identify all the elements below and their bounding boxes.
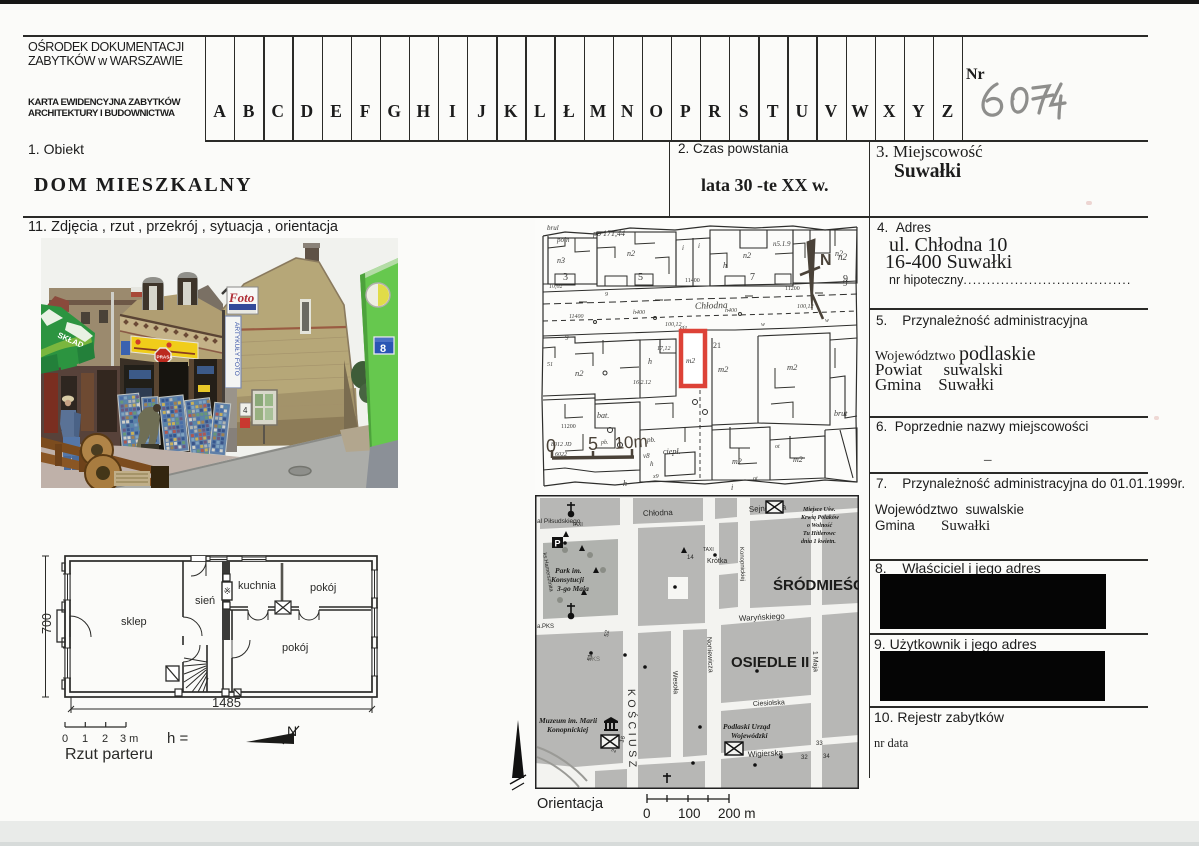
svg-text:ot: ot: [775, 444, 780, 450]
svg-text:1: 1: [82, 733, 88, 745]
svg-text:pokój: pokój: [310, 582, 336, 594]
svg-text:32: 32: [801, 755, 808, 761]
svg-text:n5.1.9: n5.1.9: [773, 240, 791, 248]
svg-text:100,12: 100,12: [665, 322, 682, 328]
svg-text:9: 9: [843, 278, 848, 288]
svg-text:21: 21: [713, 341, 721, 350]
svg-text:ŚRÓDMIEŚC: ŚRÓDMIEŚC: [773, 576, 859, 594]
svg-text:11400: 11400: [569, 313, 584, 320]
svg-text:bat.: bat.: [597, 411, 609, 420]
svg-text:9: 9: [565, 334, 569, 342]
svg-text:a.PKS: a.PKS: [537, 624, 554, 630]
svg-text:v8: v8: [643, 452, 650, 460]
svg-text:N: N: [287, 723, 297, 739]
svg-text:8: 8: [380, 343, 386, 355]
svg-text:Chłodna: Chłodna: [695, 301, 728, 312]
svg-text:0: 0: [62, 733, 68, 745]
svg-text:1 Maja: 1 Maja: [811, 651, 819, 672]
svg-text:TAXI: TAXI: [703, 547, 714, 553]
svg-text:3 m: 3 m: [120, 733, 138, 745]
svg-text:Chłodna: Chłodna: [643, 508, 674, 518]
svg-text:14: 14: [687, 555, 694, 561]
svg-text:sklep: sklep: [121, 616, 147, 628]
svg-text:x9: x9: [652, 474, 659, 480]
svg-text:4: 4: [243, 406, 248, 415]
svg-text:n2: n2: [627, 249, 635, 258]
svg-text:i: i: [682, 244, 684, 252]
svg-text:h: h: [723, 261, 727, 270]
svg-text:5: 5: [638, 272, 643, 283]
svg-text:h =: h =: [167, 730, 189, 747]
svg-text:sień: sień: [195, 595, 215, 607]
svg-text:brul: brul: [547, 224, 559, 232]
svg-text:n3: n3: [557, 256, 565, 265]
svg-text:Muzeum im. Marii: Muzeum im. Marii: [538, 716, 598, 725]
svg-text:700: 700: [40, 613, 54, 634]
svg-text:w: w: [825, 318, 829, 324]
svg-text:100,12: 100,12: [797, 304, 814, 310]
svg-text:N: N: [820, 252, 832, 269]
svg-text:KOŚCIUSZ: KOŚCIUSZ: [625, 689, 639, 771]
svg-text:pb.: pb.: [600, 440, 609, 446]
svg-text:h400: h400: [633, 309, 645, 316]
svg-text:Konsytucji: Konsytucji: [550, 575, 585, 584]
svg-text:TAXI: TAXI: [572, 522, 583, 528]
svg-text:ARTYKUŁY FOTO: ARTYKUŁY FOTO: [233, 322, 240, 376]
svg-text:i: i: [731, 483, 733, 492]
svg-text:Krwią Polaków: Krwią Polaków: [800, 515, 840, 521]
svg-text:OSIEDLE II: OSIEDLE II: [731, 654, 809, 671]
svg-text:h400: h400: [725, 307, 737, 314]
svg-text:PRASA: PRASA: [157, 355, 174, 360]
svg-text:m2: m2: [787, 362, 798, 372]
svg-text:kuchnia: kuchnia: [238, 580, 277, 592]
svg-text:Konopnickiej: Konopnickiej: [738, 547, 745, 581]
svg-text:Tu Hitlerowc: Tu Hitlerowc: [803, 531, 836, 537]
svg-text:Konopnickiej: Konopnickiej: [546, 725, 589, 734]
svg-text:Park im.: Park im.: [555, 566, 582, 575]
svg-text:200 m: 200 m: [718, 806, 756, 821]
svg-text:poln: poln: [556, 236, 570, 244]
svg-text:Rzut parteru: Rzut parteru: [65, 746, 153, 763]
svg-text:m2: m2: [793, 455, 803, 464]
svg-text:h: h: [623, 479, 627, 488]
svg-text:i: i: [698, 242, 700, 250]
svg-text:34: 34: [823, 754, 830, 760]
svg-text:m2: m2: [718, 364, 729, 374]
svg-text:※: ※: [224, 586, 232, 596]
svg-text:Krótka: Krótka: [707, 558, 727, 565]
svg-text:m2: m2: [732, 457, 742, 466]
svg-text:ot: ot: [753, 476, 758, 482]
svg-text:n2: n2: [575, 368, 584, 378]
svg-text:11200: 11200: [561, 424, 576, 430]
svg-text:po 171,44: po 171,44: [592, 229, 625, 238]
svg-text:Wesoła: Wesoła: [671, 671, 679, 695]
svg-text:P: P: [555, 539, 561, 549]
svg-text:h: h: [650, 460, 654, 468]
svg-text:11400: 11400: [685, 278, 700, 284]
svg-text:Wojewódzki: Wojewódzki: [731, 731, 768, 740]
svg-text:ciepł.: ciepł.: [663, 447, 681, 456]
svg-text:Foto: Foto: [228, 290, 255, 305]
svg-text:9: 9: [605, 292, 608, 298]
svg-text:100: 100: [678, 806, 701, 821]
svg-text:0: 0: [643, 806, 651, 821]
svg-text:Wigierska: Wigierska: [748, 748, 784, 759]
svg-text:7: 7: [750, 272, 755, 283]
svg-text:brut: brut: [834, 409, 848, 418]
svg-text:n2: n2: [743, 251, 751, 260]
svg-text:h: h: [648, 357, 652, 366]
svg-text:dnia 1 kwietn.: dnia 1 kwietn.: [801, 539, 836, 545]
svg-text:11200: 11200: [785, 286, 800, 292]
svg-text:m2: m2: [686, 356, 695, 365]
svg-text:17,12: 17,12: [657, 346, 671, 352]
svg-text:1485: 1485: [212, 695, 241, 710]
svg-text:o Wolność: o Wolność: [807, 523, 833, 529]
svg-text:33: 33: [816, 741, 823, 747]
svg-text:10,02: 10,02: [549, 284, 563, 290]
svg-text:16,2.12: 16,2.12: [633, 380, 651, 386]
svg-text:w: w: [761, 322, 765, 328]
svg-text:pokój: pokój: [282, 642, 308, 654]
svg-text:3: 3: [563, 272, 568, 283]
svg-text:51: 51: [547, 362, 553, 368]
svg-text:Podlaski Urząd: Podlaski Urząd: [723, 722, 771, 731]
svg-text:Miejsce Uśw.: Miejsce Uśw.: [802, 507, 836, 513]
svg-text:n2: n2: [838, 252, 848, 262]
svg-text:2: 2: [102, 733, 108, 745]
